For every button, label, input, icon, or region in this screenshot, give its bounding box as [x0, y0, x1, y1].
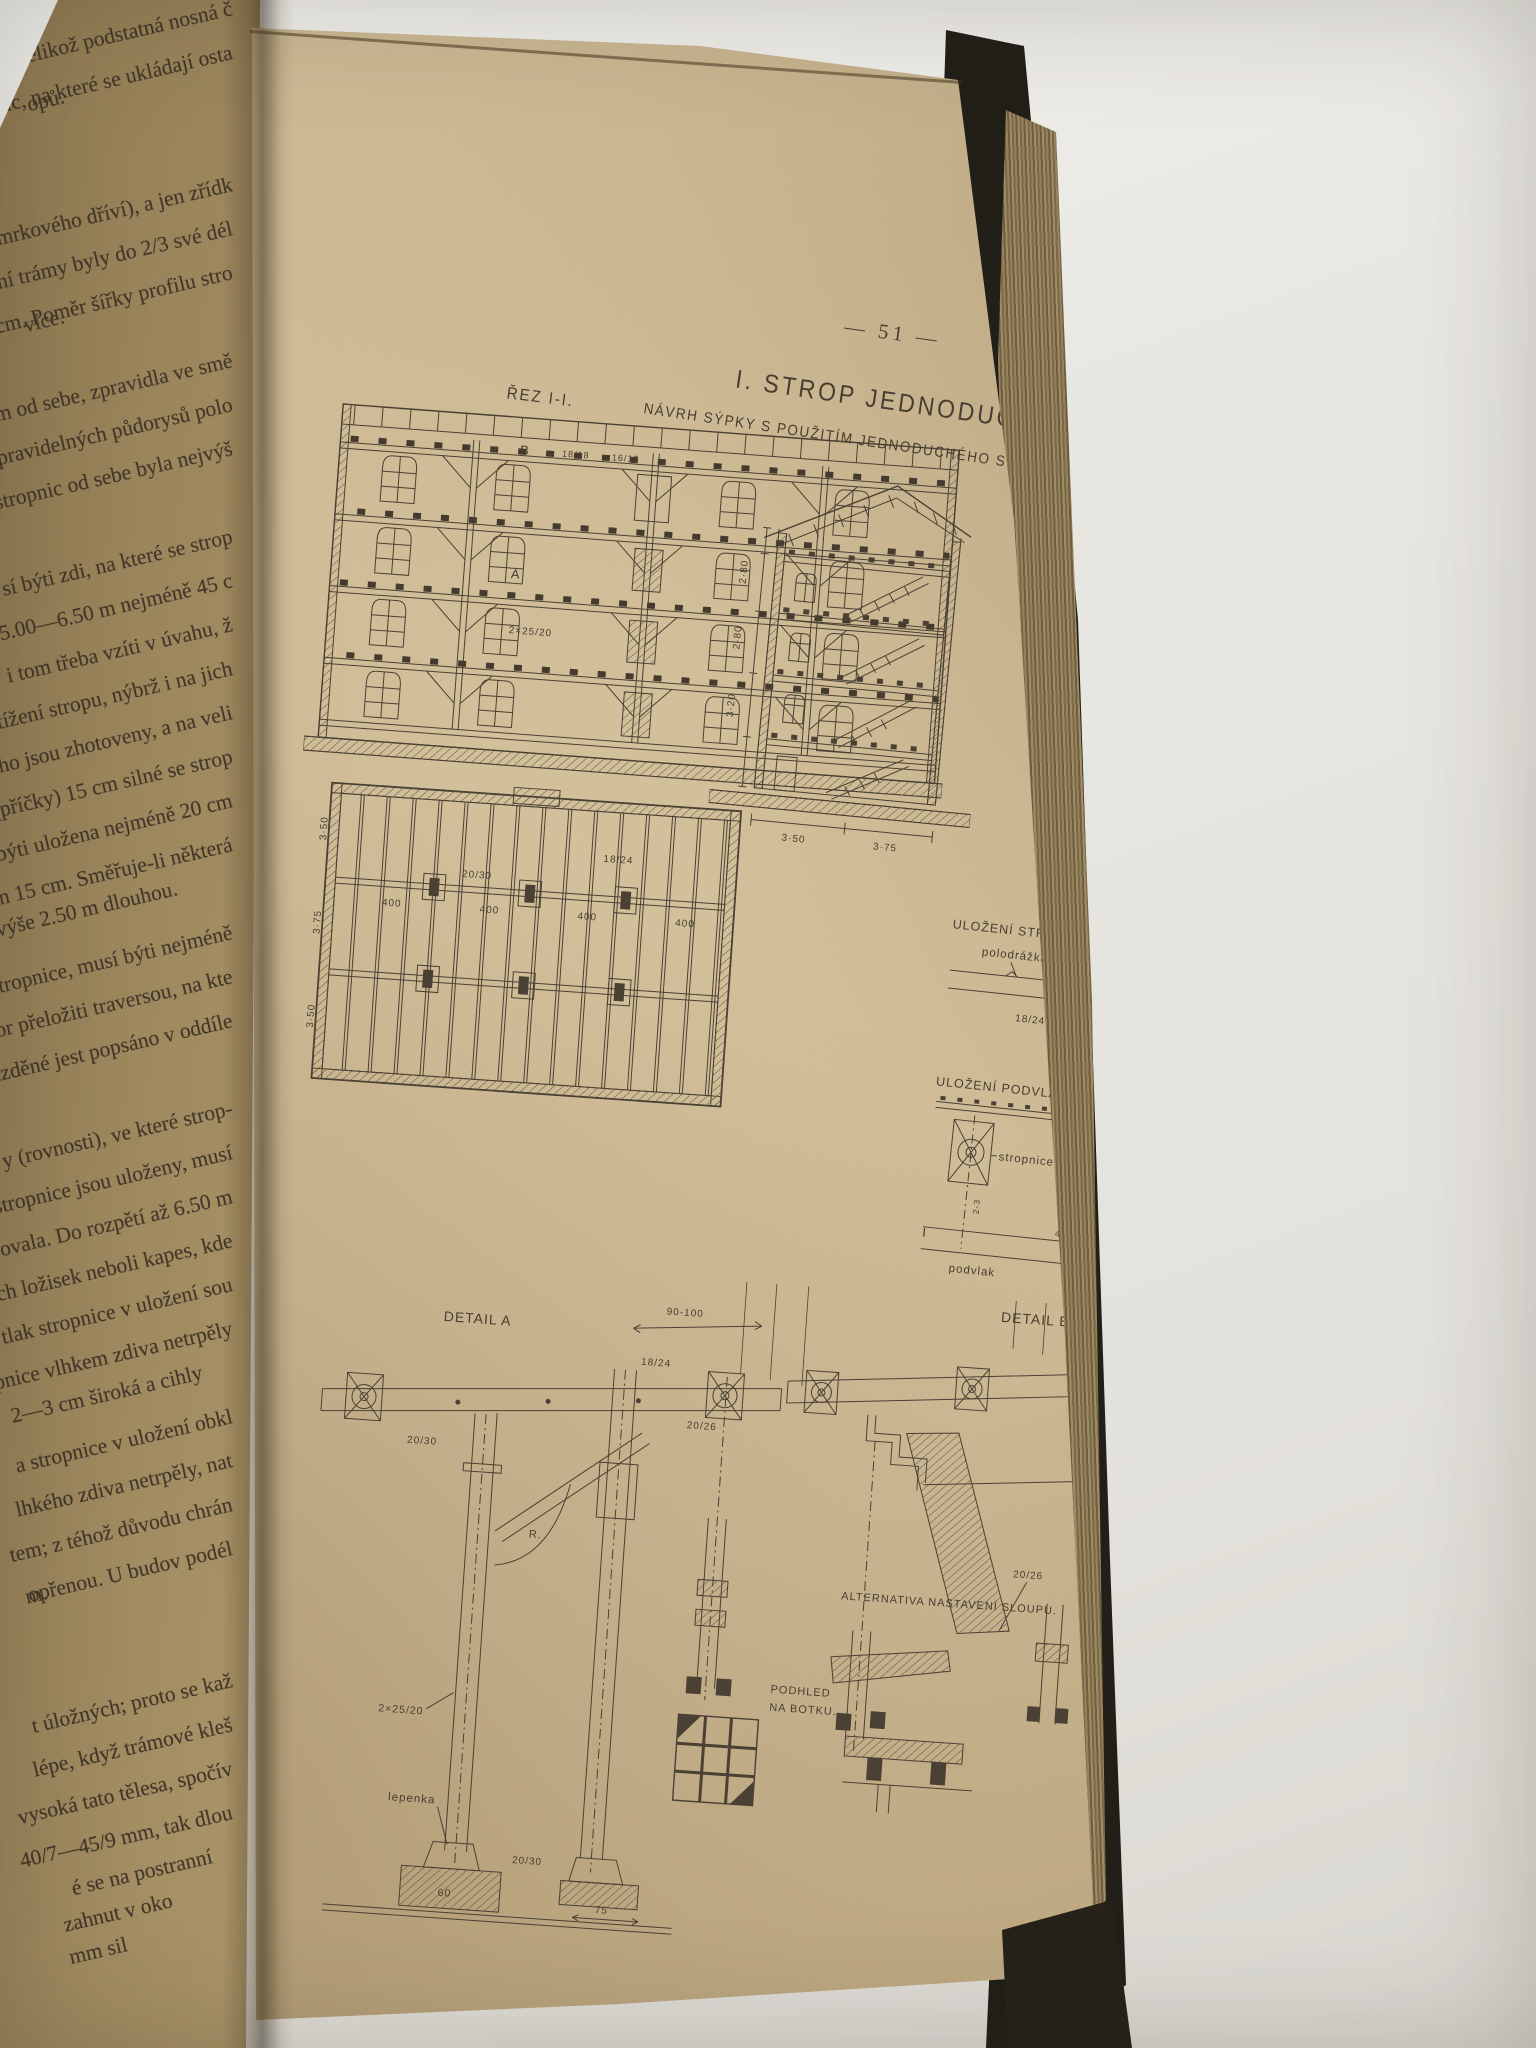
detail-a-dim-beam: 20/30 [407, 1435, 438, 1448]
dim-v1: 2·80 [738, 559, 751, 584]
dim-v2: 2·80 [731, 625, 744, 650]
label-rez-ii: ŘEZ II-II. [1091, 472, 1173, 502]
dim-beam-section: 2×25/20 [508, 625, 552, 639]
podvlak-label: podvlak [948, 1263, 996, 1280]
detail-a-dim-column: 2×25/20 [378, 1702, 424, 1717]
detail-a-dim-brace: 20/26 [686, 1420, 717, 1433]
plan-dim-bay: 400 [381, 897, 401, 909]
dim-roof: 18/18 [562, 449, 590, 461]
plan-dim-left-bot: 3·50 [305, 1003, 318, 1028]
podvlak-dim-pocket: 10 - 15 - 20 [1101, 1280, 1160, 1296]
dim-h1: 3·50 [781, 833, 806, 846]
plan-dim-left-top: 3·50 [318, 816, 331, 841]
podhled-label-1: PODHLED [770, 1684, 831, 1700]
detail-a-dim-offset: 75 [594, 1905, 608, 1917]
stropnice-dim-beam: 18/24 [1015, 1013, 1046, 1027]
plan-dim-bay: 400 [675, 918, 695, 930]
detail-a-dim-joist: 18/24 [641, 1357, 672, 1370]
polodrazka-label: polodrážka [981, 946, 1048, 965]
detail-a-label: DETAIL A [443, 1308, 512, 1329]
lepenka-label: lepenka [388, 1791, 436, 1806]
detail-a-dim-base: 20/30 [512, 1855, 543, 1868]
podvlak-marker: I [922, 1225, 928, 1240]
book-photo: ové, jelikož podstatná nosná čic, na kte… [0, 0, 1536, 2048]
dim-v3: 3·20 [725, 693, 738, 718]
stropnice-label: stropnice [998, 1151, 1055, 1169]
plan-dim-beam: 20/30 [462, 869, 493, 882]
dim-right: 16/15 [612, 452, 640, 464]
left-page-text: ové, jelikož podstatná nosná čic, na kte… [0, 0, 232, 1966]
drawing-plan: 3·50 3·75 3·50 400 400 400 400 20/30 18/… [300, 770, 754, 1133]
plan-dim-bay: 400 [577, 911, 597, 923]
marker-a: A [510, 566, 521, 582]
detail-a-dim-width: 60 [437, 1887, 451, 1900]
detail-a-radius: R. [528, 1528, 542, 1541]
podvlak-title: ULOŽENÍ PODVLAKU DO ZDI [935, 1073, 1130, 1108]
plan-dim-left-mid: 3·75 [312, 910, 325, 935]
plan-dim-joist: 18/24 [603, 854, 634, 867]
page-number: — 51 — [843, 314, 943, 352]
marker-b: B [520, 442, 531, 458]
stropnice-dim-gap: 4-5 [1091, 1012, 1103, 1028]
podvlak-dim-gap: 2-3 [971, 1198, 983, 1214]
drazka-label: drážka [1113, 960, 1155, 976]
plan-dim-bay: 400 [479, 904, 499, 916]
stropnice-dim-pocket: 20 [1187, 1039, 1200, 1050]
podhled-label-2: NA BOTKU. [769, 1702, 837, 1719]
detail-a-dim-span: 90-100 [666, 1306, 704, 1320]
alternativa-dim: 20/26 [1013, 1569, 1044, 1582]
dim-h2: 3·75 [873, 841, 898, 854]
